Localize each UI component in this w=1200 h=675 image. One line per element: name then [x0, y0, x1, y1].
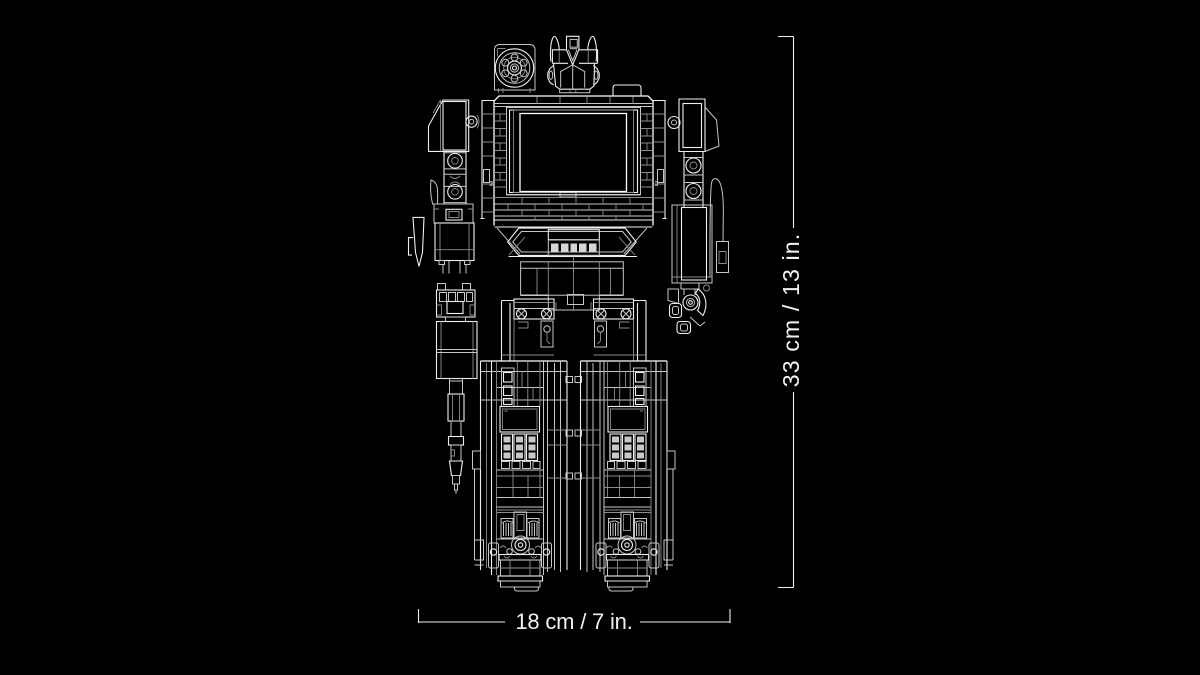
svg-text:18 cm / 7 in.: 18 cm / 7 in.: [515, 609, 632, 634]
svg-text:33 cm / 13 in.: 33 cm / 13 in.: [778, 233, 804, 388]
